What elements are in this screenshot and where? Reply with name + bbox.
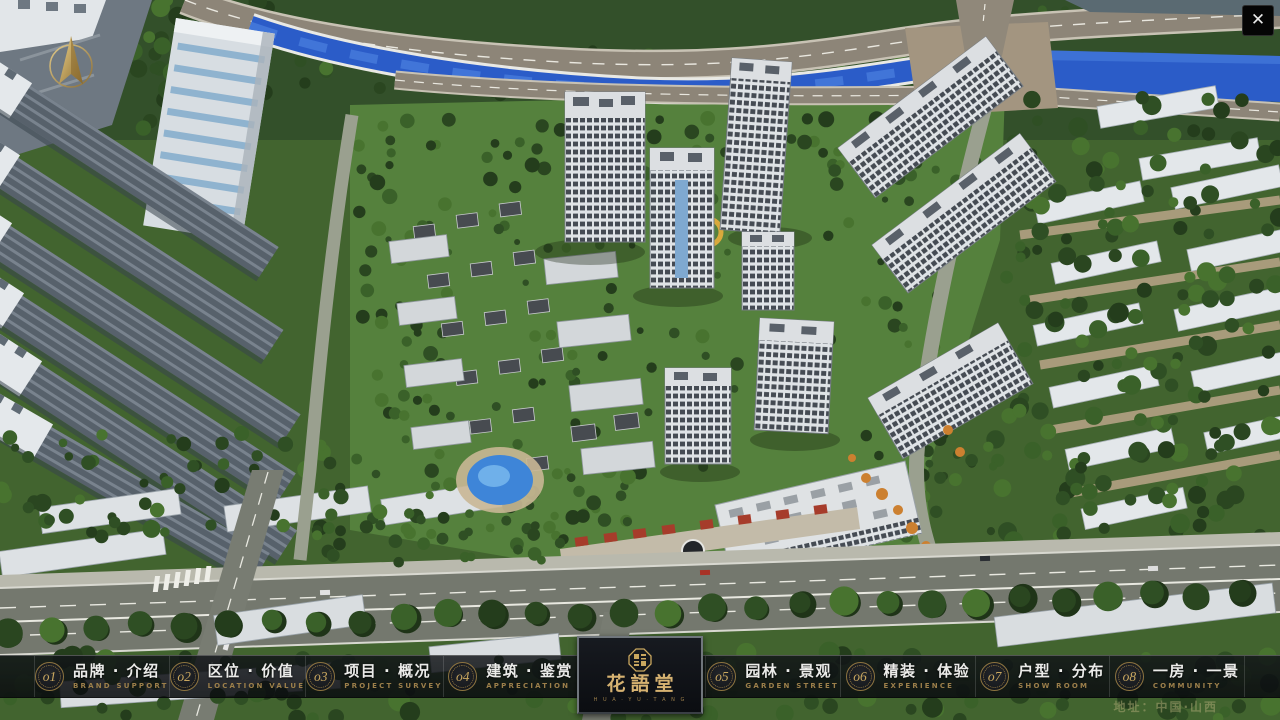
nav-item-brand[interactable]: o1 品牌 · 介绍 BRAND SUPPORT	[34, 656, 169, 697]
brand-name: 花語堂	[601, 674, 678, 695]
nav-item-community[interactable]: o8 一房 · 一景 COMMUNITY	[1109, 656, 1244, 697]
nav-item-garden[interactable]: o5 园林 · 景观 GARDEN STREET	[705, 656, 840, 697]
nav-label-en: BRAND SUPPORT	[73, 682, 169, 691]
nav-label-zh: 项目 · 概况	[344, 663, 431, 680]
nav-label-zh: 精装 · 体验	[884, 663, 971, 680]
nav-number-badge: o1	[35, 662, 64, 691]
nav-label-en: PROJECT SURVEY	[344, 682, 442, 691]
nav-number-badge: o5	[707, 662, 736, 691]
nav-number-badge: o2	[170, 662, 199, 691]
nav-label-zh: 区位 · 价值	[208, 663, 295, 680]
nav-item-location[interactable]: o2 区位 · 价值 LOCATION VALUE	[169, 656, 306, 697]
nav-item-architecture[interactable]: o4 建筑 · 鉴赏 APPRECIATION	[443, 656, 578, 697]
nav-number-badge: o6	[846, 662, 875, 691]
brand-logo-panel[interactable]: 花語堂 H U A · Y U · T A N G	[577, 636, 703, 714]
nav-label-zh: 户型 · 分布	[1018, 663, 1105, 680]
nav-label-zh: 建筑 · 鉴赏	[486, 663, 573, 680]
project-address: 地址：中国·山西	[1113, 698, 1218, 715]
nav-number-badge: o4	[448, 662, 477, 691]
seal-icon	[628, 648, 652, 672]
nav-label-en: EXPERIENCE	[884, 682, 955, 691]
nav-spacer	[0, 656, 34, 697]
brand-subtitle: H U A · Y U · T A N G	[594, 697, 687, 703]
nav-item-floorplan[interactable]: o7 户型 · 分布 SHOW ROOM	[975, 656, 1110, 697]
app-window: ✕ o1 品牌 · 介绍 BRAND SUPPORT o2 区位 · 价值 LO…	[0, 0, 1280, 720]
nav-label-en: APPRECIATION	[486, 682, 570, 691]
nav-number-badge: o3	[306, 662, 335, 691]
nav-label-en: COMMUNITY	[1153, 682, 1222, 691]
nav-label-en: SHOW ROOM	[1018, 682, 1089, 691]
close-button[interactable]: ✕	[1242, 5, 1274, 36]
nav-label-zh: 一房 · 一景	[1153, 663, 1240, 680]
nav-label-zh: 园林 · 景观	[745, 663, 832, 680]
nav-label-en: LOCATION VALUE	[208, 682, 306, 691]
masterplan-render[interactable]	[0, 0, 1280, 720]
nav-number-badge: o8	[1115, 662, 1144, 691]
nav-spacer	[1244, 656, 1280, 697]
nav-item-interior[interactable]: o6 精装 · 体验 EXPERIENCE	[840, 656, 975, 697]
nav-item-project[interactable]: o3 项目 · 概况 PROJECT SURVEY	[305, 656, 442, 697]
nav-label-zh: 品牌 · 介绍	[73, 663, 160, 680]
nav-number-badge: o7	[980, 662, 1009, 691]
nav-label-en: GARDEN STREET	[745, 682, 839, 691]
